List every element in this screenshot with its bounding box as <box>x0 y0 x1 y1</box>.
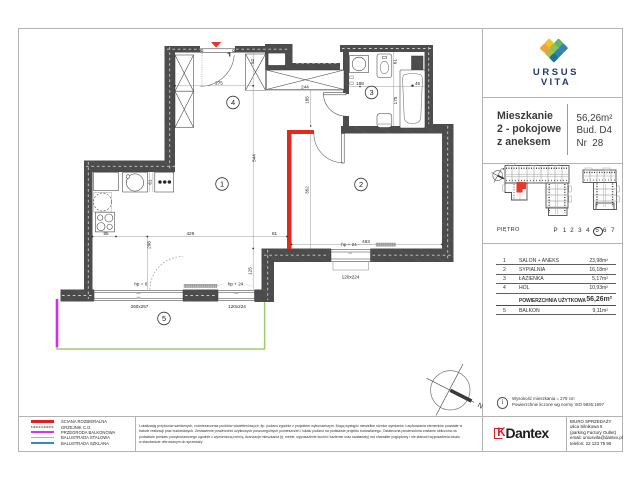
svg-text:275: 275 <box>215 80 223 85</box>
svg-text:61: 61 <box>393 59 398 65</box>
svg-text:544: 544 <box>252 154 257 162</box>
svg-text:298: 298 <box>147 241 152 249</box>
svg-text:188: 188 <box>356 81 364 86</box>
svg-text:52: 52 <box>250 58 255 64</box>
svg-text:125: 125 <box>248 267 253 275</box>
svg-text:hp = 0: hp = 0 <box>134 281 147 286</box>
svg-text:4: 4 <box>231 98 235 107</box>
svg-text:N: N <box>476 402 484 411</box>
svg-text:1: 1 <box>220 180 224 189</box>
svg-text:175: 175 <box>393 96 398 104</box>
svg-text:3: 3 <box>369 88 373 97</box>
svg-text:45: 45 <box>415 81 421 86</box>
svg-text:244: 244 <box>301 84 309 89</box>
svg-text:61: 61 <box>148 179 153 185</box>
svg-text:185: 185 <box>305 96 310 104</box>
svg-text:5: 5 <box>162 314 166 323</box>
svg-text:352: 352 <box>305 186 310 194</box>
svg-text:120x224: 120x224 <box>228 304 246 309</box>
svg-text:hp + 24: hp + 24 <box>341 242 357 247</box>
svg-text:120x224: 120x224 <box>342 275 360 280</box>
svg-text:260x257: 260x257 <box>131 304 149 309</box>
svg-text:463: 463 <box>362 239 370 244</box>
svg-text:2: 2 <box>359 180 363 189</box>
svg-text:hp + 24: hp + 24 <box>228 281 244 286</box>
